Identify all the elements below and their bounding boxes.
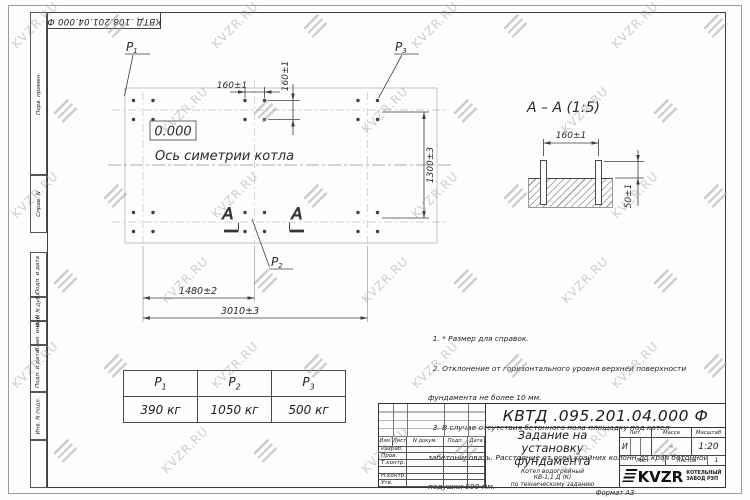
- note-line: 1. * Размер для справок.: [428, 334, 708, 344]
- load-value-p3: 500 кг: [272, 397, 346, 423]
- load-header-p2: P2: [198, 371, 272, 397]
- document-number: КВТД .095.201.04.000 Ф: [486, 404, 725, 428]
- cell: [444, 460, 468, 467]
- divider: [468, 404, 469, 437]
- note-line: 2. Отклонение от горизонтального уровня …: [428, 364, 708, 374]
- anchor-bolt-right: [595, 160, 602, 205]
- table-row: 390 кг 1050 кг 500 кг: [124, 397, 346, 423]
- loads-table: P1 P2 P3 390 кг 1050 кг 500 кг: [123, 370, 346, 423]
- note-line: фундамента не более 10 мм.: [428, 393, 708, 403]
- lit-cell-empty: [631, 438, 642, 455]
- lit-cells: И: [620, 438, 652, 455]
- col-header-data: Дата: [468, 437, 485, 447]
- organization-cell: KVZR КОТЕЛЬНЫЙ ЗАВОД РЭП: [620, 466, 725, 487]
- cell: [468, 474, 485, 481]
- table-row: P1 P2 P3: [124, 371, 346, 397]
- format-label: Формат А3: [500, 489, 730, 497]
- row-label-empty: [379, 467, 407, 474]
- strip-label: Перв. примен.: [36, 73, 42, 115]
- cell: [444, 447, 468, 454]
- cell: [407, 467, 444, 474]
- change-table: Изм. Лист N докум. Подп. Дата Разраб. Пр…: [379, 404, 486, 487]
- strip-cell-podp-data-2: Подп. и дата: [30, 345, 47, 392]
- drawing-title-line: фундамента: [514, 455, 590, 468]
- top-doc-number-box: КВТД .108.201.04.000 Ф: [47, 12, 161, 29]
- organization-name: КОТЕЛЬНЫЙ ЗАВОД РЭП: [686, 471, 721, 482]
- lit-mass-scale-header: Лит. Масса Масштаб: [620, 428, 725, 438]
- row-label-prov: Пров.: [379, 453, 407, 460]
- divider: [444, 404, 445, 437]
- strip-cell-inv-podl: Инв. N подл.: [30, 392, 47, 440]
- row-label-tkontr: Т.контр.: [379, 460, 407, 467]
- sheet-row: Лист Листов 1: [620, 456, 725, 466]
- strip-label: Подп. и дата: [36, 255, 42, 293]
- cell: [468, 447, 485, 454]
- cell: [468, 460, 485, 467]
- load-value-p1: 390 кг: [124, 397, 198, 423]
- cell: [444, 467, 468, 474]
- strip-label: Подп. и дата: [36, 349, 42, 387]
- sheet-label: Лист: [620, 456, 666, 465]
- logo-text: KVZR: [638, 468, 684, 486]
- load-value-p2: 1050 кг: [198, 397, 272, 423]
- row-label-nkontr: Н.контр.: [379, 474, 407, 481]
- lit-mass-scale-values: И – 1:20: [620, 438, 725, 456]
- divider: [407, 404, 408, 437]
- sheets-label: Листов: [666, 456, 708, 465]
- strip-cell-perv-primen: Перв. примен.: [30, 12, 47, 175]
- title-block: Изм. Лист N докум. Подп. Дата Разраб. Пр…: [378, 403, 726, 488]
- strip-label: Инв. N подл.: [36, 398, 42, 435]
- strip-cell-empty: [30, 440, 47, 488]
- sheets-value: 1: [708, 456, 725, 465]
- drawing-title-cell: Задание на установку фундамента Котел во…: [486, 428, 619, 487]
- cell: [444, 453, 468, 460]
- strip-label: Справ. N: [36, 191, 42, 217]
- lit-value: И: [620, 438, 631, 455]
- lit-label: Лит.: [620, 428, 652, 437]
- mass-label: Масса: [652, 428, 692, 437]
- cell: [444, 474, 468, 481]
- lit-cell-empty: [641, 438, 651, 455]
- drawing-subtitle-line: по техническому заданию: [511, 482, 594, 489]
- col-header-izm: Изм.: [379, 437, 393, 447]
- strip-cell-vzam-inv: Взам. инв. N: [30, 321, 47, 345]
- row-label-razrab: Разраб.: [379, 447, 407, 454]
- title-block-right: Лит. Масса Масштаб И – 1:20 Лист Листов …: [619, 428, 725, 487]
- load-header-p1: P1: [124, 371, 198, 397]
- change-grid: Изм. Лист N докум. Подп. Дата Разраб. Пр…: [379, 437, 485, 487]
- scale-value: 1:20: [692, 438, 725, 455]
- cell: [407, 460, 444, 467]
- col-header-podp: Подп.: [444, 437, 468, 447]
- cell: [407, 474, 444, 481]
- cell: [468, 453, 485, 460]
- coil-logo-icon: [621, 469, 637, 484]
- cell: [407, 453, 444, 460]
- row-label-utv: Утв.: [379, 480, 407, 487]
- top-doc-number: КВТД .108.201.04.000 Ф: [47, 16, 162, 26]
- org-line: ЗАВОД РЭП: [686, 477, 721, 482]
- cell: [468, 480, 485, 487]
- drawing-sheet: Перв. примен. Справ. N Подп. и дата Инв.…: [0, 0, 750, 500]
- cell: [468, 467, 485, 474]
- change-blank-rows: [379, 404, 485, 437]
- mass-value: –: [652, 438, 692, 455]
- col-header-ndokum: N докум.: [407, 437, 444, 447]
- col-header-list: Лист: [393, 437, 407, 447]
- cell: [407, 447, 444, 454]
- anchor-bolt-left: [540, 160, 547, 205]
- cell: [407, 480, 444, 487]
- strip-cell-sprav-n: Справ. N: [30, 175, 47, 233]
- divider: [393, 404, 394, 437]
- cell: [444, 480, 468, 487]
- scale-label: Масштаб: [692, 428, 725, 437]
- load-header-p3: P3: [272, 371, 346, 397]
